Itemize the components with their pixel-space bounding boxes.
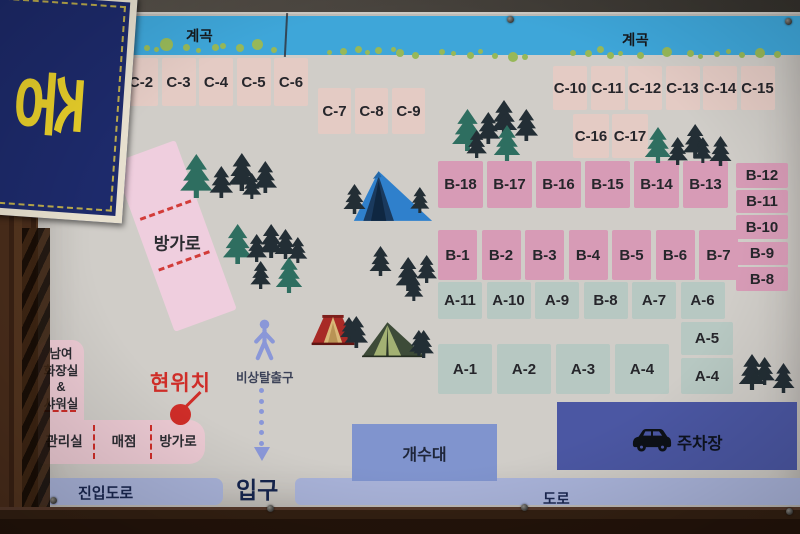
- shrub-dot-icon: [467, 52, 474, 59]
- car-icon: [631, 424, 673, 453]
- arrow-dot: [259, 409, 264, 414]
- sink-label: 개수대: [402, 441, 446, 465]
- pine-tree-icon: [249, 261, 272, 289]
- campsite-C-11: C-11: [591, 66, 625, 110]
- bungalow-divider-dash: [140, 200, 192, 221]
- sink-station-box: 개수대: [352, 424, 497, 481]
- campsite-B-7: B-7: [699, 230, 738, 280]
- campsite-C-10: C-10: [553, 66, 587, 110]
- pine-tree-icon: [492, 125, 522, 161]
- campsite-C-8: C-8: [355, 88, 388, 134]
- arrow-dot: [259, 399, 264, 404]
- access-road-label: 진입도로: [78, 482, 133, 503]
- campsite-B-15: B-15: [585, 161, 630, 208]
- map-board: 계곡 계곡 C-0C-1C-2C-3C-4C-5C-6C-7C-8C-9C-10…: [38, 12, 800, 507]
- campsite-B-18: B-18: [438, 161, 483, 208]
- campground-map-photo: 계곡 계곡 C-0C-1C-2C-3C-4C-5C-6C-7C-8C-9C-10…: [0, 0, 800, 534]
- shrub-dot-icon: [522, 54, 528, 60]
- arrow-dot: [259, 388, 264, 393]
- shrub-dot-icon: [687, 50, 694, 57]
- campsite-B-9: B-9: [736, 242, 788, 265]
- shrub-dot-icon: [698, 54, 703, 59]
- campsite-A-3: A-3: [556, 344, 610, 394]
- screw: [786, 508, 793, 515]
- campsite-C-5: C-5: [237, 58, 271, 106]
- shrub-dot-icon: [391, 47, 396, 52]
- campsite-A-2: A-2: [497, 344, 551, 394]
- screw: [507, 16, 514, 23]
- shrub-dot-icon: [375, 47, 382, 54]
- screw: [785, 18, 792, 25]
- shrub-dot-icon: [755, 48, 765, 58]
- shrub-dot-icon: [154, 47, 159, 52]
- campsite-B-14: B-14: [634, 161, 679, 208]
- shrub-dot-icon: [355, 46, 362, 53]
- campsite-B-11: B-11: [736, 190, 788, 213]
- campsite-C-4: C-4: [199, 58, 233, 106]
- pedestrian-icon: [251, 318, 278, 363]
- campsite-B-8: B-8: [736, 267, 788, 291]
- pine-tree-icon: [339, 317, 359, 341]
- campsite-C-9: C-9: [392, 88, 425, 134]
- campsite-C-12: C-12: [628, 66, 662, 110]
- bungalow-zone-label: 방가로: [144, 230, 210, 255]
- bungalow-room-label: 방가로: [152, 420, 204, 464]
- campsite-C-13: C-13: [666, 66, 700, 110]
- shrub-dot-icon: [570, 50, 576, 56]
- campsite-A-4: A-4: [615, 344, 669, 394]
- screw: [521, 504, 528, 511]
- shrub-dot-icon: [327, 50, 332, 55]
- stream-band: 계곡 계곡: [46, 16, 800, 55]
- shrub-dot-icon: [492, 53, 498, 59]
- shrub-dot-icon: [144, 45, 150, 51]
- shrub-dot-icon: [607, 52, 614, 59]
- building-divider-dash: [93, 425, 95, 459]
- road-label: 도로: [543, 488, 570, 509]
- campsite-C-3: C-3: [162, 58, 196, 106]
- campsite-C-7: C-7: [318, 88, 351, 134]
- campsite-B-13: B-13: [683, 161, 728, 208]
- current-location-label: 현위치: [150, 367, 211, 397]
- shrub-dot-icon: [726, 49, 731, 54]
- campsite-A-1: A-1: [438, 344, 492, 394]
- shrub-dot-icon: [252, 39, 263, 50]
- shrub-dot-icon: [478, 49, 483, 54]
- arrow-dot: [259, 430, 264, 435]
- campsite-B-8: B-8: [584, 282, 628, 319]
- shrub-dot-icon: [212, 44, 219, 51]
- campsite-A-11: A-11: [438, 282, 482, 319]
- pine-tree-icon: [771, 363, 796, 393]
- campsite-A-10: A-10: [487, 282, 531, 319]
- pine-tree-icon: [403, 275, 425, 301]
- entrance-arrow-head: [254, 447, 270, 461]
- campsite-B-5: B-5: [612, 230, 651, 280]
- campsite-B-6: B-6: [656, 230, 695, 280]
- campsite-C-14: C-14: [703, 66, 737, 110]
- parking-label: 주차장: [677, 430, 723, 454]
- screw: [267, 505, 274, 512]
- shrub-dot-icon: [340, 48, 347, 55]
- campsite-B-16: B-16: [536, 161, 581, 208]
- corner-sign: 중: [0, 0, 138, 223]
- pine-tree-icon: [465, 130, 488, 158]
- wood-trim-serrated: [22, 228, 50, 508]
- arrow-dot: [259, 441, 264, 446]
- campsite-B-1: B-1: [438, 230, 477, 280]
- store-label: 매점: [98, 420, 150, 464]
- pine-tree-icon: [342, 184, 367, 214]
- shrub-dot-icon: [618, 51, 623, 56]
- campsite-B-4: B-4: [569, 230, 608, 280]
- shrub-dot-icon: [451, 51, 456, 56]
- shrub-dot-icon: [508, 52, 518, 62]
- pine-tree-icon: [287, 237, 309, 263]
- campsite-A-6: A-6: [681, 282, 725, 319]
- shrub-dot-icon: [196, 48, 201, 53]
- shrub-dot-icon: [271, 47, 277, 53]
- shrub-dot-icon: [396, 49, 404, 57]
- shrub-dot-icon: [739, 52, 745, 58]
- shrub-dot-icon: [774, 51, 781, 58]
- shrub-dot-icon: [236, 44, 244, 52]
- shrub-dot-icon: [439, 49, 445, 55]
- shrub-dot-icon: [597, 46, 604, 53]
- building-divider-dash: [150, 425, 152, 459]
- stream-label-right: 계곡: [622, 29, 649, 50]
- entrance-label: 입구: [236, 471, 278, 505]
- campsite-A-5: A-5: [681, 322, 733, 355]
- arrow-dot: [259, 420, 264, 425]
- shrub-dot-icon: [412, 52, 419, 59]
- shrub-dot-icon: [220, 43, 226, 49]
- shrub-dot-icon: [662, 47, 672, 57]
- corner-sign-border: 중: [0, 0, 126, 212]
- wood-wall-bottom: [0, 507, 800, 534]
- shrub-dot-icon: [365, 50, 370, 55]
- screw: [50, 497, 57, 504]
- shrub-dot-icon: [714, 51, 720, 57]
- campsite-B-2: B-2: [482, 230, 521, 280]
- campsite-B-10: B-10: [736, 215, 788, 239]
- campsite-C-16: C-16: [573, 114, 609, 158]
- campsite-A-9: A-9: [535, 282, 579, 319]
- campsite-B-3: B-3: [525, 230, 564, 280]
- campsite-C-6: C-6: [274, 58, 308, 106]
- corner-sign-character: 중: [9, 67, 88, 140]
- shrub-dot-icon: [585, 50, 592, 57]
- campsite-A-4: A-4: [681, 358, 733, 394]
- stream-label-left: 계곡: [186, 25, 213, 46]
- campsite-A-7: A-7: [632, 282, 676, 319]
- pine-tree-icon: [252, 161, 279, 193]
- campsite-B-12: B-12: [736, 163, 788, 188]
- pine-tree-icon: [408, 330, 430, 356]
- shrub-dot-icon: [637, 52, 644, 59]
- pine-tree-icon: [409, 187, 431, 213]
- pine-tree-icon: [368, 246, 393, 276]
- current-location-dot: [170, 404, 191, 425]
- shrub-dot-icon: [183, 44, 190, 51]
- emergency-exit-label: 비상탈출구: [236, 367, 294, 386]
- shrub-dot-icon: [160, 38, 173, 51]
- campsite-B-17: B-17: [487, 161, 532, 208]
- pine-tree-icon: [708, 136, 733, 166]
- campsite-C-15: C-15: [741, 66, 775, 110]
